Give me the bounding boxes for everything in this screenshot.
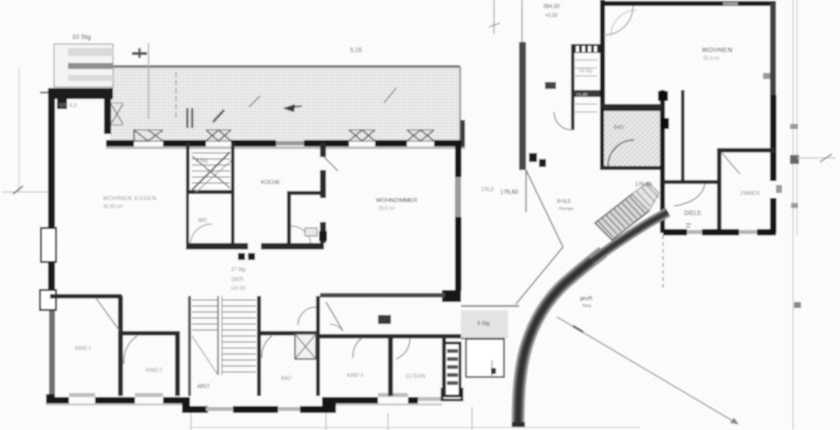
svg-text:BAD: BAD — [614, 125, 625, 131]
svg-text:28,6 m²: 28,6 m² — [378, 206, 395, 212]
svg-text:3 Stg: 3 Stg — [477, 321, 490, 327]
svg-text:ABST: ABST — [197, 384, 210, 390]
svg-text:WOHNEN ESSEN: WOHNEN ESSEN — [103, 196, 157, 202]
svg-text:WOHNEN: WOHNEN — [702, 47, 733, 54]
svg-text:R=9,0: R=9,0 — [557, 199, 571, 205]
svg-text:BAD: BAD — [281, 376, 292, 382]
svg-text:GH 90: GH 90 — [231, 286, 246, 292]
svg-text:18/25: 18/25 — [231, 277, 244, 283]
svg-text:WF 4,3: WF 4,3 — [59, 103, 77, 109]
svg-text:DIELE: DIELE — [684, 211, 701, 217]
svg-text:WC: WC — [198, 218, 207, 224]
svg-text:176,0: 176,0 — [481, 187, 494, 193]
svg-text:WOHNZIMMER: WOHNZIMMER — [376, 198, 417, 204]
svg-text:KIND 2: KIND 2 — [146, 368, 162, 374]
svg-text:176,50: 176,50 — [635, 182, 652, 188]
svg-text:+1,40: +1,40 — [576, 92, 588, 97]
svg-text:ELTERN: ELTERN — [406, 374, 426, 380]
svg-text:32,4 m²: 32,4 m² — [703, 56, 720, 62]
svg-text:Rampe: Rampe — [559, 206, 574, 211]
svg-text:5,15: 5,15 — [350, 48, 362, 54]
svg-text:Weg: Weg — [582, 303, 592, 308]
svg-text:17 Stg: 17 Stg — [231, 267, 246, 273]
svg-text:18 Stg: 18 Stg — [579, 68, 593, 73]
svg-text:10 Stg: 10 Stg — [72, 34, 91, 41]
svg-text:176,60: 176,60 — [500, 190, 519, 196]
svg-text:+0,00: +0,00 — [545, 13, 558, 19]
svg-text:gepfl.: gepfl. — [580, 296, 594, 302]
svg-text:ZIMMER: ZIMMER — [740, 191, 760, 197]
svg-text:284,50: 284,50 — [543, 4, 560, 10]
svg-text:KIND 1: KIND 1 — [75, 346, 91, 352]
svg-text:KIND 3: KIND 3 — [347, 373, 363, 379]
svg-text:46,80 m²: 46,80 m² — [103, 204, 123, 210]
svg-text:KÜCHE: KÜCHE — [261, 179, 281, 186]
svg-text:8 Stg: 8 Stg — [196, 158, 208, 164]
